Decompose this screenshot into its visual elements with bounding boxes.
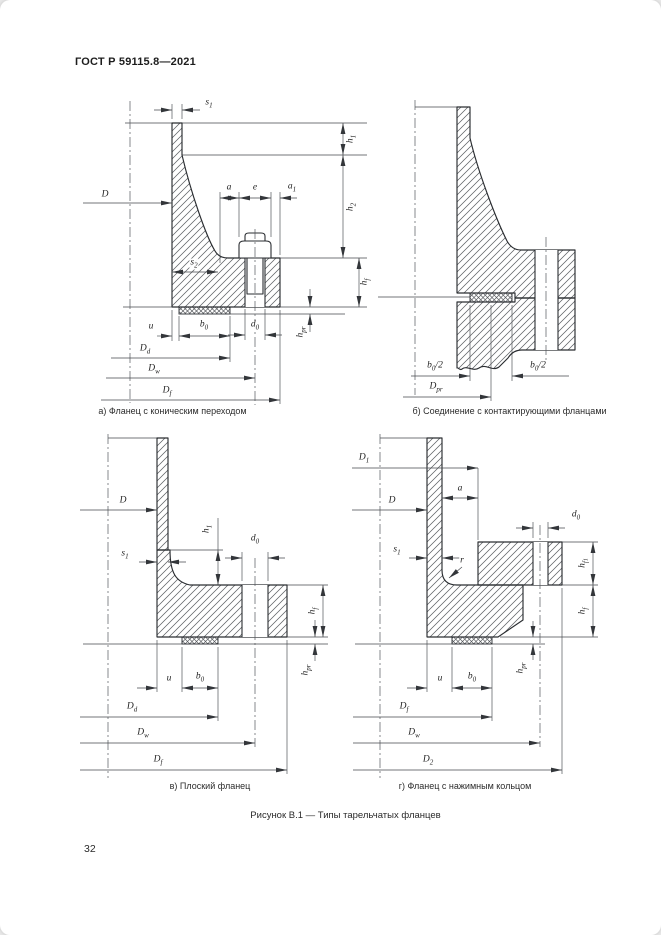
dim-label-u: u — [437, 674, 444, 684]
drawing-pressure-ring-flange — [350, 430, 660, 795]
dim-label-b0: b0 — [467, 673, 477, 684]
dim-label-h2: h2 — [347, 202, 358, 212]
dim-label-s1: s1 — [204, 99, 213, 110]
drawing-contacting-flanges — [375, 95, 655, 425]
panel-g-caption: г) Фланец с нажимным кольцом — [350, 781, 580, 791]
figure-caption: Рисунок В.1 — Типы тарельчатых фланцев — [0, 810, 661, 821]
figure-panel-g: D1 D a s1 r d0 hf1 hf hpr u b0 Df Dw D2 … — [350, 430, 660, 795]
dim-label-hf1: hf1 — [579, 557, 590, 569]
dim-label-Df: Df — [153, 756, 164, 767]
dim-label-D: D — [101, 190, 110, 200]
dim-label-b0-half-left: b0/2 — [426, 362, 444, 373]
gasket — [179, 307, 230, 314]
dim-label-hf: hf — [579, 607, 590, 616]
dim-label-a: a — [226, 183, 233, 193]
dim-label-D1: D1 — [358, 454, 370, 465]
figure-panel-v: D h1 s1 d0 hf hpr u b0 Dd Dw Df в) Плоск… — [75, 430, 345, 795]
dim-label-r: r — [459, 556, 465, 566]
dim-label-Dw: Dw — [136, 729, 150, 740]
dim-label-a1: a1 — [287, 183, 297, 194]
dim-label-h1: h1 — [203, 524, 214, 534]
dim-label-Dd: Dd — [126, 703, 138, 714]
dim-label-hf: hf — [309, 607, 320, 616]
dim-label-h1: h1 — [347, 134, 358, 144]
dim-label-u: u — [148, 322, 155, 332]
dim-label-D: D — [119, 496, 128, 506]
panel-b-caption: б) Соединение с контактирующими фланцами — [387, 406, 632, 416]
dim-label-b0: b0 — [195, 673, 205, 684]
dim-label-hf: hf — [361, 278, 372, 287]
dim-label-D2: D2 — [422, 756, 434, 767]
panel-v-caption: в) Плоский фланец — [75, 781, 345, 791]
dim-label-a: a — [457, 484, 464, 494]
document-page: ГОСТ Р 59115.8—2021 — [0, 0, 661, 935]
dim-label-d0: d0 — [250, 535, 260, 546]
dimension-lines — [83, 110, 359, 400]
dim-label-Dpr: Dpr — [428, 383, 443, 394]
dim-label-Dd: Dd — [139, 345, 151, 356]
dim-label-s1: s1 — [120, 550, 129, 561]
flange-section — [157, 438, 287, 644]
dim-label-b0-half-right: b0/2 — [529, 362, 547, 373]
drawing-flat-flange — [75, 430, 345, 795]
page-number: 32 — [84, 843, 96, 855]
panel-a-caption: а) Фланец с коническим переходом — [75, 406, 270, 416]
dim-label-e: e — [252, 183, 258, 193]
dim-label-hpr: hpr — [297, 326, 308, 339]
dim-label-u: u — [166, 674, 173, 684]
drawing-flange-conical — [75, 95, 370, 425]
dim-label-s2: s2 — [189, 259, 198, 270]
dim-label-hpr: hpr — [517, 662, 528, 675]
figure-panel-b: b0/2 b0/2 Dpr б) Соединение с контактиру… — [375, 95, 655, 425]
gasket — [452, 637, 492, 644]
pipe-wall — [157, 438, 168, 550]
dim-label-d0: d0 — [250, 321, 260, 332]
flange-section — [457, 107, 575, 370]
dim-label-Dw: Dw — [407, 729, 421, 740]
page-header: ГОСТ Р 59115.8—2021 — [75, 56, 196, 68]
dim-label-Df: Df — [399, 703, 410, 714]
dim-label-Df: Df — [162, 387, 173, 398]
dim-label-D: D — [388, 496, 397, 506]
dim-label-d0: d0 — [571, 511, 581, 522]
flange-section — [427, 438, 562, 644]
flange-section — [172, 123, 280, 314]
gasket — [470, 293, 512, 302]
dim-label-b0: b0 — [199, 321, 209, 332]
dim-label-s1: s1 — [392, 546, 401, 557]
pressure-ring — [478, 542, 562, 585]
gasket — [182, 637, 218, 644]
figure-panel-a: s1 D a e a1 h1 h2 s2 hf u b0 d0 hpr Dd D… — [75, 95, 370, 425]
dim-label-Dw: Dw — [147, 365, 161, 376]
dim-label-hpr: hpr — [302, 664, 313, 677]
